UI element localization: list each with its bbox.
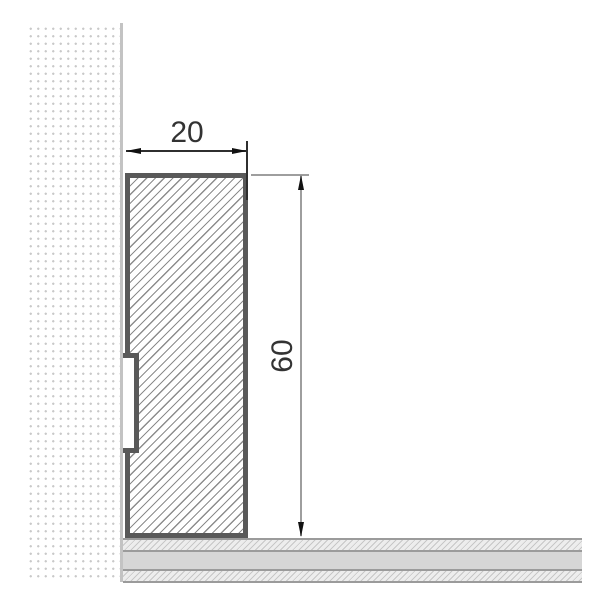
width-extension-line <box>246 141 248 200</box>
floor-bottom-line <box>123 581 582 583</box>
width-arrow-right-icon <box>232 148 247 154</box>
floor-hatch-layer-top <box>123 540 582 550</box>
floor-core-band <box>123 552 582 569</box>
height-dimension-label: 60 <box>267 326 299 386</box>
height-arrow-bottom-icon <box>298 522 304 537</box>
height-arrow-top-icon <box>298 175 304 190</box>
profile-back-groove <box>123 353 139 453</box>
width-dimension-label: 20 <box>157 117 217 149</box>
floor-hatch-layer-bottom <box>123 571 582 581</box>
technical-drawing: 20 60 <box>0 0 604 604</box>
height-dimension-line <box>300 176 302 536</box>
width-arrow-left-icon <box>126 148 141 154</box>
wall-section <box>25 23 123 582</box>
floor-section <box>123 538 582 583</box>
width-dimension-line <box>126 150 247 152</box>
skirting-profile <box>125 173 248 538</box>
